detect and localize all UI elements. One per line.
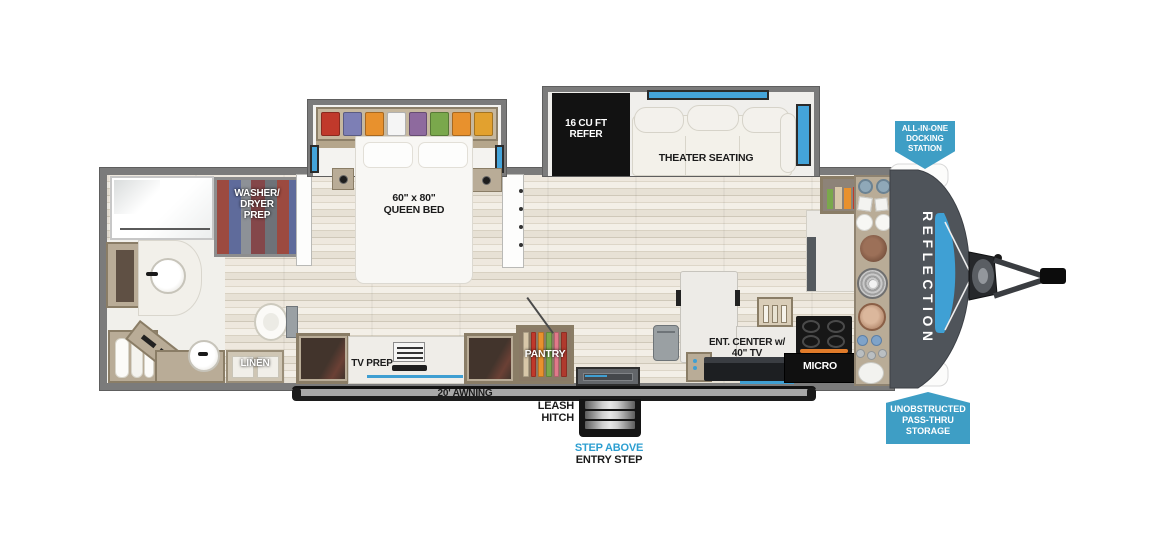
door-roller xyxy=(519,189,523,193)
step-tread xyxy=(585,411,635,419)
appliance-light xyxy=(693,359,697,363)
clothes-item xyxy=(321,112,340,136)
burner xyxy=(802,335,820,348)
pan-knob xyxy=(869,280,877,288)
step-above-label: STEP ABOVE xyxy=(566,442,652,454)
ent-center-label: ENT. CENTER w/ 40" TV xyxy=(702,337,792,359)
shower-glass xyxy=(114,180,160,214)
glass-item xyxy=(867,351,876,360)
counter-side-panel xyxy=(807,237,816,291)
spice-bottle xyxy=(763,305,769,323)
door-roller xyxy=(519,243,523,247)
sofa-back-cushion xyxy=(634,107,684,133)
lamp xyxy=(339,175,348,184)
clothes-item xyxy=(474,112,493,136)
sink-faucet xyxy=(146,272,158,276)
vanity-cabinet xyxy=(106,242,142,308)
pillow xyxy=(363,142,413,168)
bathroom-sink xyxy=(150,258,186,294)
shower-door-track xyxy=(120,228,210,230)
entry-step-label: ENTRY STEP xyxy=(566,454,652,466)
tv-bracket-slot xyxy=(397,347,423,349)
cup-item xyxy=(857,335,868,346)
led-strip xyxy=(367,375,463,378)
nightstand-left xyxy=(332,168,354,190)
entertainment-tv xyxy=(704,357,796,381)
clothes-item xyxy=(343,112,362,136)
pillow xyxy=(418,142,468,168)
bedroom-window-left xyxy=(310,145,319,173)
shower xyxy=(110,176,214,240)
queen-bed-label: 60" x 80" QUEEN BED xyxy=(363,193,465,217)
clothes-item xyxy=(409,112,428,136)
lamp xyxy=(482,176,491,185)
floorplan-canvas: WASHER/ DRYER PREP LINEN xyxy=(0,0,1165,560)
clothes-item xyxy=(430,112,449,136)
second-sink-faucet xyxy=(198,352,208,356)
landing-led xyxy=(585,375,607,377)
dish-item xyxy=(856,214,873,231)
step-tread xyxy=(585,421,635,429)
reflection-brand-text: REFLECTION xyxy=(913,191,943,365)
linen-label: LINEN xyxy=(226,358,284,369)
spice-bottle xyxy=(781,305,787,323)
bath-bedroom-wall xyxy=(296,174,312,266)
sofa-back-cushion xyxy=(687,105,739,131)
burner xyxy=(802,320,820,333)
second-sink xyxy=(188,340,220,372)
awning-end-cap xyxy=(807,388,816,399)
wardrobe-cabinet-left xyxy=(296,333,350,384)
door-roller xyxy=(519,225,523,229)
theater-window-top xyxy=(647,90,769,100)
towel xyxy=(115,338,129,378)
sofa-armrest xyxy=(780,113,796,173)
pantry-label: PANTRY xyxy=(514,349,576,361)
dish-item xyxy=(857,196,873,212)
clothes-item xyxy=(452,112,471,136)
brush-item xyxy=(141,334,157,348)
corner-counter-marble xyxy=(806,210,858,292)
stove xyxy=(796,316,852,354)
awning-end-cap xyxy=(292,388,301,399)
dish-item xyxy=(858,179,873,194)
nightstand-right xyxy=(472,168,502,192)
entry-landing xyxy=(576,367,640,386)
island-handle xyxy=(735,290,740,306)
wardrobe-cabinet-right xyxy=(464,333,516,384)
clothes-item xyxy=(365,112,384,136)
cabinet-glass xyxy=(301,338,345,379)
door-roller xyxy=(519,207,523,211)
trash-can xyxy=(653,325,679,361)
tv-bracket-slot xyxy=(397,357,423,359)
toilet xyxy=(254,303,288,341)
burner xyxy=(827,335,845,348)
theater-window-side xyxy=(796,104,811,166)
cabinet-glass xyxy=(469,338,511,379)
island-handle xyxy=(676,290,681,306)
clothes-item xyxy=(387,112,406,136)
micro-label: MICRO xyxy=(784,361,856,373)
leash-hitch-label: LEASH HITCH xyxy=(512,400,574,424)
tv-bracket-slot xyxy=(397,352,423,354)
toilet-bowl xyxy=(263,313,279,331)
appliance-light xyxy=(693,366,697,370)
pass-thru-storage-badge: UNOBSTRUCTED PASS-THRU STORAGE xyxy=(886,392,970,444)
spice-rack xyxy=(757,297,793,327)
burner xyxy=(827,320,845,333)
vanity-cabinet-door xyxy=(116,250,134,302)
awning-label: 20' AWNING xyxy=(415,388,515,399)
spice-bottle xyxy=(772,305,778,323)
glass-item xyxy=(856,349,865,358)
trash-lid-line xyxy=(657,331,675,333)
entry-steps xyxy=(579,399,641,437)
washer-dryer-label: WASHER/ DRYER PREP xyxy=(214,188,300,222)
refer-label: 16 CU FT REFER xyxy=(547,118,625,140)
awning-rail xyxy=(292,386,816,401)
theater-seating-label: THEATER SEATING xyxy=(636,153,776,165)
cabinet-item xyxy=(835,187,842,209)
tv-prep-label: TV PREP xyxy=(346,358,398,369)
cabinet-item xyxy=(827,189,833,209)
front-cap-graphic xyxy=(880,158,1080,408)
step-tread xyxy=(585,401,635,409)
cabinet-item xyxy=(844,188,851,209)
bedroom-living-wall xyxy=(502,174,524,268)
